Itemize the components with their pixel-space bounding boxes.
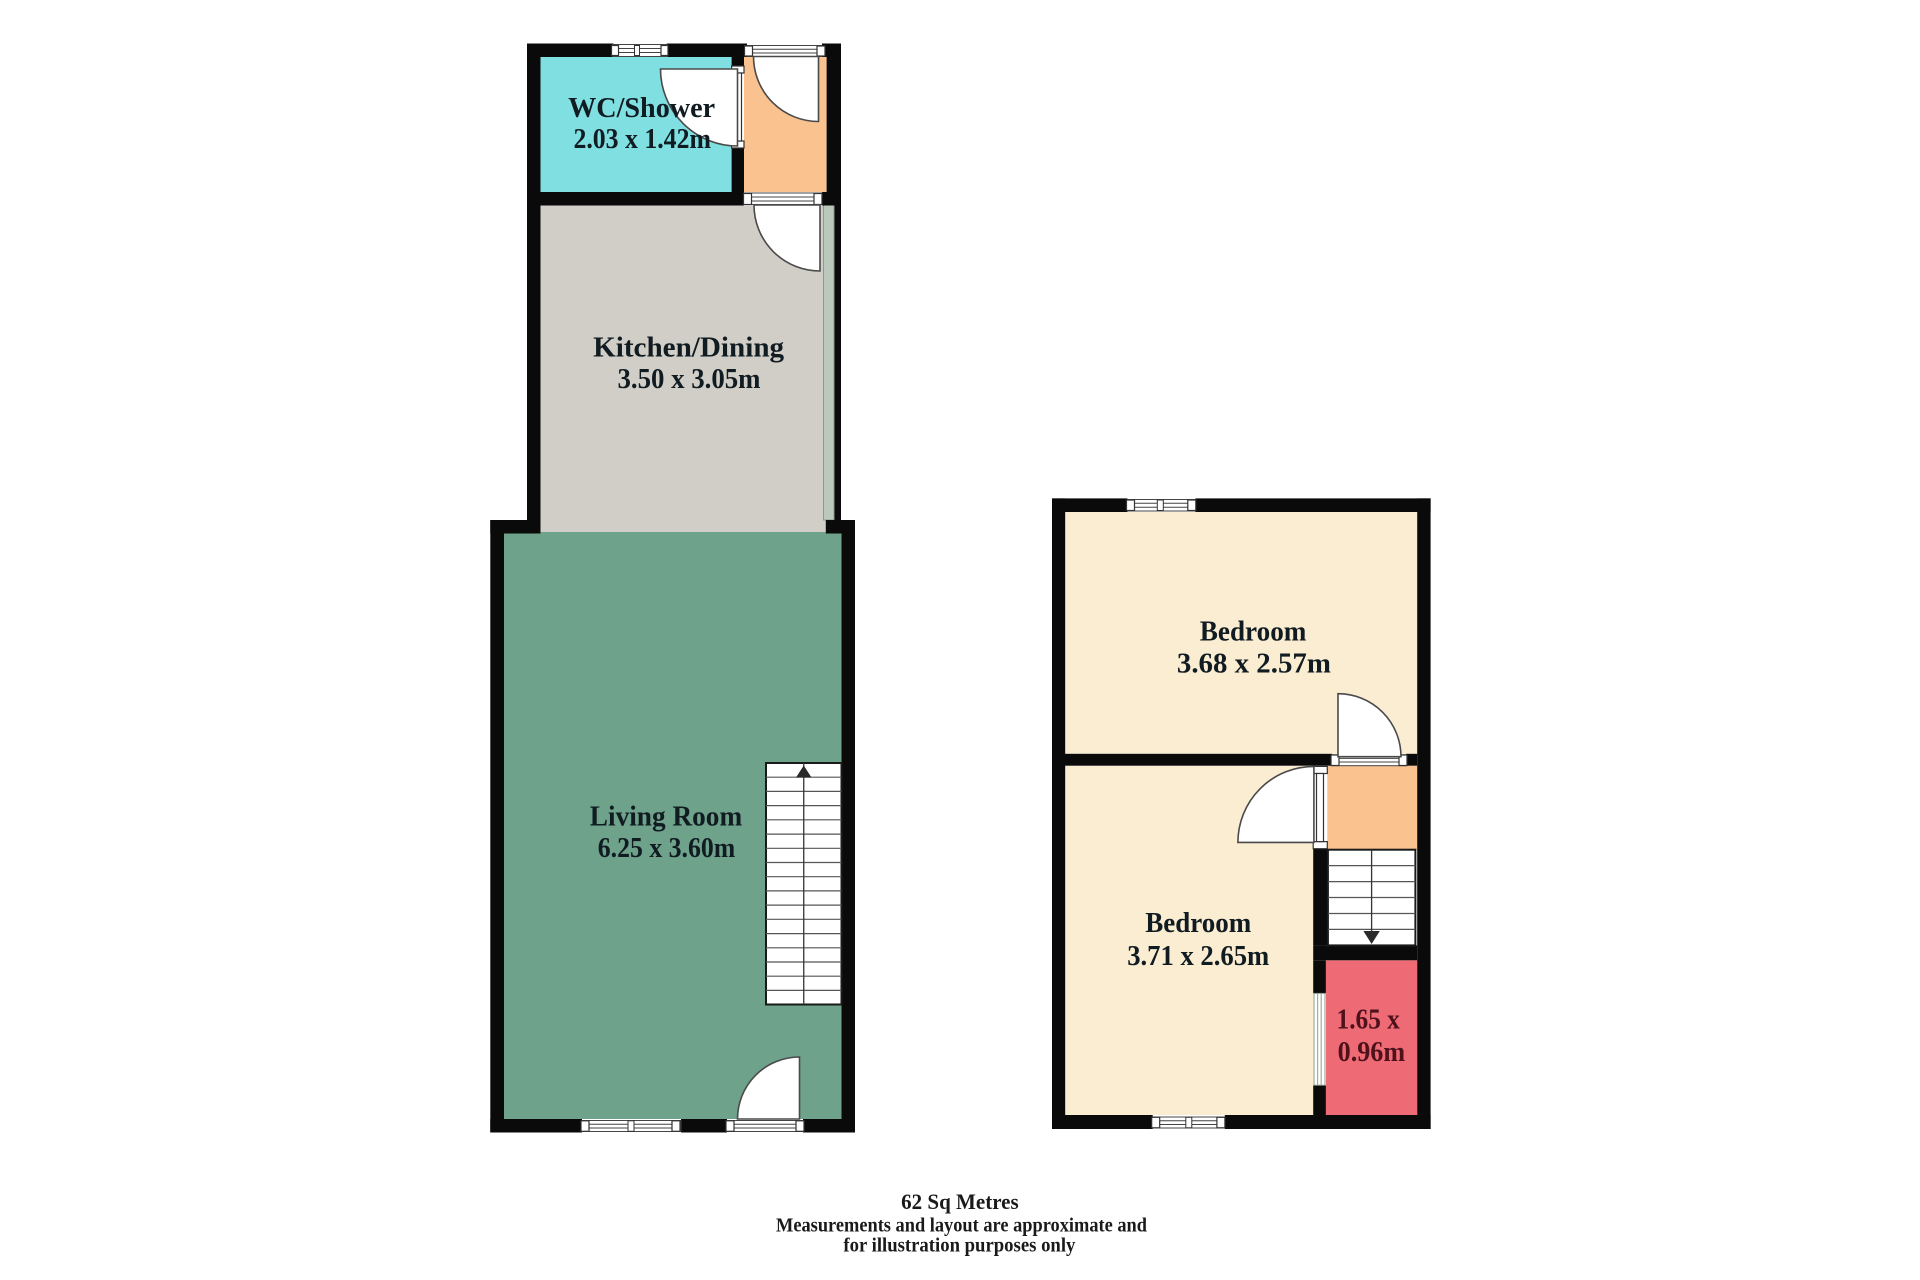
svg-text:0.96m: 0.96m bbox=[1338, 1037, 1406, 1068]
svg-text:3.50 x 3.05m: 3.50 x 3.05m bbox=[618, 364, 761, 395]
svg-text:2.03 x 1.42m: 2.03 x 1.42m bbox=[573, 124, 711, 155]
svg-text:WC/Shower: WC/Shower bbox=[568, 93, 715, 124]
svg-text:Bedroom: Bedroom bbox=[1200, 617, 1307, 648]
svg-text:3.68 x 2.57m: 3.68 x 2.57m bbox=[1177, 649, 1331, 680]
svg-text:Measurements and layout are ap: Measurements and layout are approximate … bbox=[776, 1215, 1147, 1237]
svg-text:Bedroom: Bedroom bbox=[1145, 908, 1251, 939]
svg-text:6.25 x 3.60m: 6.25 x 3.60m bbox=[598, 833, 736, 864]
svg-text:Kitchen/Dining: Kitchen/Dining bbox=[593, 333, 784, 364]
svg-text:62 Sq Metres: 62 Sq Metres bbox=[901, 1189, 1019, 1214]
svg-text:3.71 x 2.65m: 3.71 x 2.65m bbox=[1127, 941, 1269, 972]
svg-text:for illustration purposes only: for illustration purposes only bbox=[843, 1235, 1075, 1257]
svg-text:Living Room: Living Room bbox=[590, 802, 742, 833]
svg-text:1.65 x: 1.65 x bbox=[1337, 1004, 1400, 1035]
